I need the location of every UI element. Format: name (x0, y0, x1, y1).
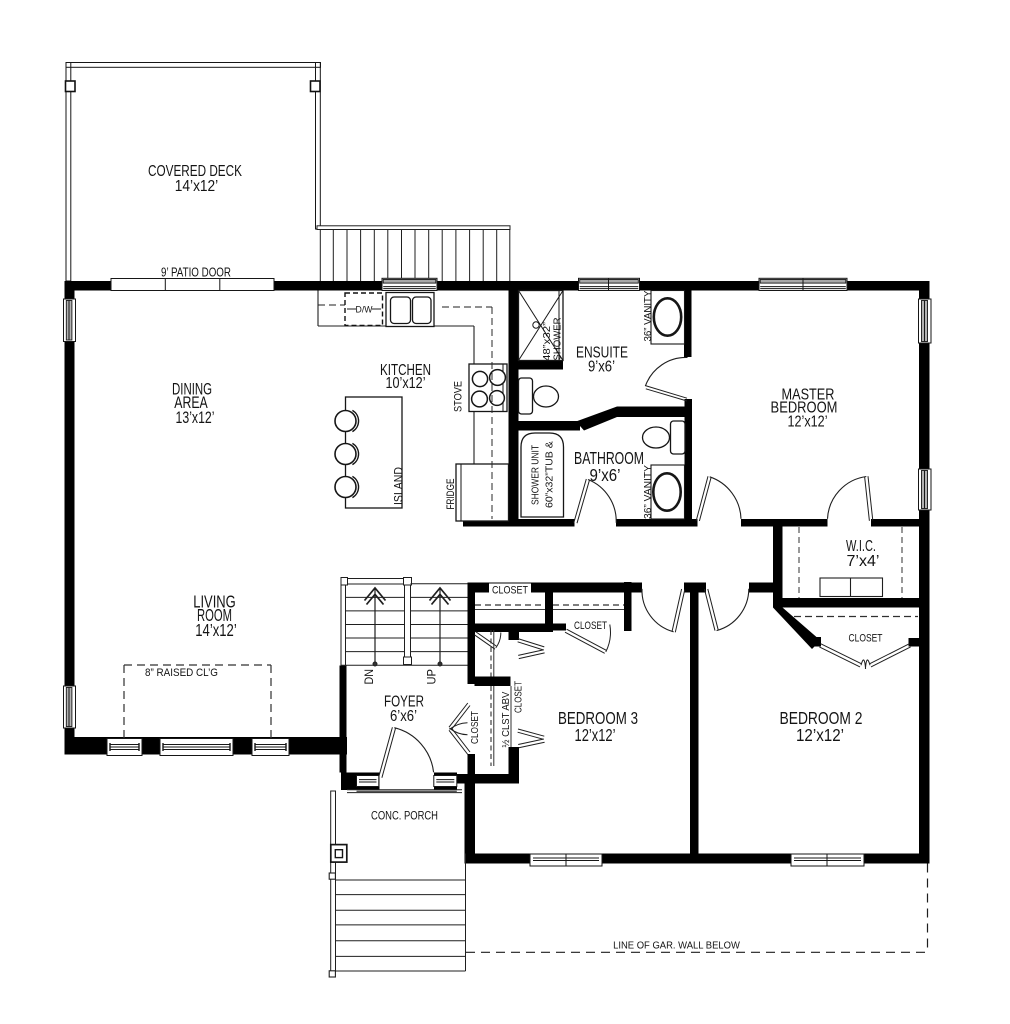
svg-text:W.I.C.: W.I.C. (846, 537, 876, 554)
svg-text:SHOWER UNIT: SHOWER UNIT (530, 445, 541, 505)
svg-text:7’x4’: 7’x4’ (847, 553, 880, 570)
svg-text:9’x6’: 9’x6’ (588, 359, 615, 376)
svg-text:D/W: D/W (356, 304, 373, 314)
svg-text:SHOWER: SHOWER (552, 318, 563, 361)
svg-text:9’ PATIO DOOR: 9’ PATIO DOOR (161, 266, 231, 279)
svg-text:DN: DN (364, 669, 377, 685)
svg-text:13’x12’: 13’x12’ (176, 409, 215, 427)
svg-text:STOVE: STOVE (453, 381, 465, 412)
svg-text:LINE OF GAR. WALL BELOW: LINE OF GAR. WALL BELOW (613, 940, 741, 951)
svg-text:12’x12’: 12’x12’ (796, 725, 844, 746)
svg-text:½ CLST ABV: ½ CLST ABV (501, 691, 512, 747)
svg-text:9’x6’: 9’x6’ (590, 465, 621, 486)
svg-text:12’x12’: 12’x12’ (788, 412, 828, 430)
svg-text:36” VANITY: 36” VANITY (643, 290, 654, 341)
svg-text:6’x6’: 6’x6’ (390, 708, 417, 725)
svg-text:UP: UP (426, 669, 438, 685)
svg-text:48”x32”: 48”x32” (542, 322, 553, 361)
svg-text:14’x12’: 14’x12’ (175, 178, 218, 195)
svg-text:COVERED DECK: COVERED DECK (148, 161, 242, 179)
svg-text:CLOSET: CLOSET (574, 620, 607, 632)
svg-text:8” RAISED CL’G: 8” RAISED CL’G (145, 668, 218, 680)
svg-text:CLOSET: CLOSET (492, 585, 528, 597)
svg-text:CLOSET: CLOSET (513, 681, 524, 713)
svg-text:12’x12’: 12’x12’ (575, 726, 616, 746)
svg-text:10’x12’: 10’x12’ (386, 374, 426, 392)
svg-text:60”x32”TUB &: 60”x32”TUB & (545, 441, 556, 508)
svg-text:14’x12’: 14’x12’ (195, 621, 236, 640)
svg-text:ISLAND: ISLAND (393, 467, 406, 505)
svg-text:CLOSET: CLOSET (469, 711, 480, 744)
svg-text:FRIDGE: FRIDGE (445, 478, 457, 509)
svg-text:CLOSET: CLOSET (849, 633, 883, 645)
svg-text:CONC. PORCH: CONC. PORCH (371, 810, 438, 823)
svg-text:36” VANITY: 36” VANITY (643, 465, 654, 519)
